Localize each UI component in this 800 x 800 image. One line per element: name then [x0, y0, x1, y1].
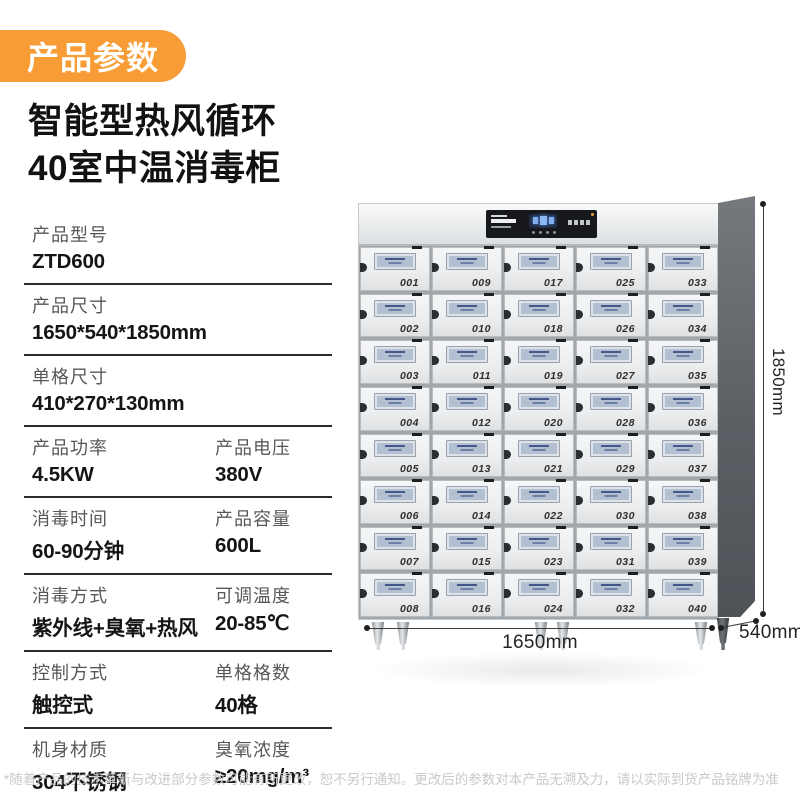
door-window: [446, 533, 488, 550]
spec-value: 410*270*130mm: [32, 392, 215, 416]
door-window-label: [521, 396, 557, 407]
door-hinge: [412, 386, 422, 389]
door-number: 030: [616, 510, 635, 522]
spec-label: 可调温度: [215, 582, 332, 608]
dim-height-line: [763, 207, 764, 613]
control-panel-subtext: [491, 226, 511, 228]
window-text-line: [389, 449, 402, 451]
window-text-line: [533, 495, 546, 497]
cabinet-door: 007: [360, 527, 430, 571]
cabinet-door: 037: [648, 434, 718, 478]
door-window: [590, 579, 632, 596]
door-window-label: [449, 489, 485, 500]
door-latch-icon: [576, 450, 583, 459]
door-latch-icon: [576, 543, 583, 552]
dim-depth-label: 540mm: [739, 622, 800, 644]
door-window-label: [593, 256, 629, 267]
door-hinge: [484, 339, 494, 342]
control-panel-logo: [491, 215, 507, 217]
spec-value: 60-90分钟: [32, 534, 215, 564]
door-window: [590, 253, 632, 270]
door-latch-icon: [648, 543, 655, 552]
dim-width-label: 1650mm: [485, 632, 595, 654]
door-window-label: [665, 396, 701, 407]
door-number: 029: [616, 463, 635, 475]
window-text-line: [677, 495, 690, 497]
cabinet-door: 032: [576, 573, 646, 617]
door-number: 026: [616, 323, 635, 335]
cabinet-door: 015: [432, 527, 502, 571]
window-text-line: [529, 584, 549, 586]
cabinet-door: 002: [360, 294, 430, 338]
door-hinge: [412, 293, 422, 296]
door-window-label: [665, 256, 701, 267]
window-text-line: [461, 309, 474, 311]
door-number: 024: [544, 603, 563, 615]
door-window-label: [521, 256, 557, 267]
spec-label: 臭氧浓度: [215, 736, 332, 762]
door-window: [446, 486, 488, 503]
window-text-line: [601, 398, 621, 400]
spec-label: 产品功率: [32, 434, 215, 460]
window-text-line: [385, 538, 405, 540]
cabinet-door: 006: [360, 480, 430, 524]
display-digit: [540, 216, 547, 225]
door-window: [662, 346, 704, 363]
door-hinge: [484, 246, 494, 249]
cabinet-leg: [371, 622, 385, 650]
panel-function-icon: [574, 220, 578, 225]
control-panel: [486, 210, 597, 238]
door-hinge: [628, 433, 638, 436]
product-params-badge: 产品参数: [0, 30, 186, 82]
door-number: 010: [472, 323, 491, 335]
window-text-line: [601, 305, 621, 307]
window-text-line: [529, 491, 549, 493]
spec-cell: 可调温度20-85℃: [215, 582, 332, 641]
door-number: 002: [400, 323, 419, 335]
cabinet-door: 035: [648, 340, 718, 384]
door-latch-icon: [504, 403, 511, 412]
spec-value: 20-85℃: [215, 611, 332, 636]
door-window-label: [377, 303, 413, 314]
dim-height-label: 1850mm: [768, 348, 788, 416]
door-window-label: [593, 489, 629, 500]
spec-value: 600L: [215, 534, 332, 558]
window-text-line: [389, 495, 402, 497]
window-text-line: [389, 355, 402, 357]
door-window-label: [593, 582, 629, 593]
spec-row: 产品功率4.5KW产品电压380V: [24, 427, 332, 498]
door-hinge: [412, 246, 422, 249]
door-window-label: [593, 536, 629, 547]
disclaimer-footnote: *随着产品的技术革新与改进部分参数可能有所更改，恕不另行通知。更改后的参数对本产…: [4, 768, 798, 788]
door-latch-icon: [432, 356, 439, 365]
cabinet-door: 029: [576, 434, 646, 478]
door-window: [518, 440, 560, 457]
window-text-line: [385, 445, 405, 447]
door-window: [374, 393, 416, 410]
spec-row: 机身材质304不锈钢臭氧浓度≥20mg/m³: [24, 729, 332, 800]
door-number: 011: [473, 370, 491, 382]
door-hinge: [628, 339, 638, 342]
spec-row: 消毒方式紫外线+臭氧+热风可调温度20-85℃: [24, 575, 332, 652]
door-window: [518, 300, 560, 317]
panel-button: [539, 231, 542, 234]
window-text-line: [605, 542, 618, 544]
spec-row: 单格尺寸410*270*130mm: [24, 356, 332, 427]
spec-table: 产品型号ZTD600产品尺寸1650*540*1850mm单格尺寸410*270…: [24, 214, 332, 800]
badge-label: 产品参数: [27, 33, 159, 79]
door-latch-icon: [360, 543, 367, 552]
door-hinge: [484, 293, 494, 296]
window-text-line: [533, 309, 546, 311]
door-window: [590, 486, 632, 503]
display-digit: [549, 217, 554, 224]
door-window-label: [449, 349, 485, 360]
spec-label: 机身材质: [32, 736, 215, 762]
door-hinge: [556, 246, 566, 249]
door-window-label: [449, 256, 485, 267]
window-text-line: [389, 588, 402, 590]
door-number: 014: [472, 510, 491, 522]
window-text-line: [605, 449, 618, 451]
window-text-line: [673, 445, 693, 447]
door-window-label: [377, 489, 413, 500]
door-hinge: [700, 433, 710, 436]
door-hinge: [484, 433, 494, 436]
spec-label: 单格格数: [215, 659, 332, 685]
door-latch-icon: [432, 450, 439, 459]
cabinet-door: 013: [432, 434, 502, 478]
door-number: 022: [544, 510, 563, 522]
window-text-line: [461, 262, 474, 264]
door-window: [662, 253, 704, 270]
cabinet-door: 027: [576, 340, 646, 384]
door-number: 031: [616, 556, 635, 568]
door-window-label: [449, 582, 485, 593]
door-hinge: [484, 526, 494, 529]
spec-row: 消毒时间60-90分钟产品容量600L: [24, 498, 332, 575]
window-text-line: [529, 398, 549, 400]
door-hinge: [556, 433, 566, 436]
panel-function-icon: [586, 220, 590, 225]
window-text-line: [601, 351, 621, 353]
door-latch-icon: [648, 403, 655, 412]
panel-function-icon: [580, 220, 584, 225]
door-number: 019: [544, 370, 563, 382]
window-text-line: [533, 402, 546, 404]
door-number: 020: [544, 417, 563, 429]
cabinet-door: 012: [432, 387, 502, 431]
panel-button: [546, 231, 549, 234]
door-window-label: [593, 349, 629, 360]
door-number: 034: [688, 323, 707, 335]
door-latch-icon: [504, 263, 511, 272]
door-window: [662, 393, 704, 410]
cabinet-door: 040: [648, 573, 718, 617]
door-hinge: [484, 479, 494, 482]
window-text-line: [457, 584, 477, 586]
window-text-line: [529, 305, 549, 307]
window-text-line: [461, 355, 474, 357]
product-title: 智能型热风循环 40室中温消毒柜: [28, 99, 281, 193]
door-latch-icon: [360, 496, 367, 505]
power-indicator-dot: [591, 213, 594, 216]
cabinet-door: 018: [504, 294, 574, 338]
dim-dot: [364, 625, 370, 631]
cabinet-side-panel: [718, 196, 755, 624]
spec-cell: 产品功率4.5KW: [32, 434, 215, 487]
door-number: 040: [688, 603, 707, 615]
door-number: 004: [400, 417, 419, 429]
spec-cell: 产品尺寸1650*540*1850mm: [32, 292, 215, 345]
door-number: 028: [616, 417, 635, 429]
door-window: [446, 440, 488, 457]
door-window-label: [665, 443, 701, 454]
cabinet-door: 014: [432, 480, 502, 524]
cabinet-door: 016: [432, 573, 502, 617]
window-text-line: [605, 309, 618, 311]
door-latch-icon: [432, 263, 439, 272]
window-text-line: [533, 262, 546, 264]
door-hinge: [412, 526, 422, 529]
door-number: 001: [400, 277, 419, 289]
door-window: [374, 533, 416, 550]
spec-cell: 消毒方式紫外线+臭氧+热风: [32, 582, 215, 641]
door-number: 009: [472, 277, 491, 289]
cabinet-door: 005: [360, 434, 430, 478]
door-number: 017: [544, 277, 563, 289]
panel-button: [553, 231, 556, 234]
cabinet-door: 009: [432, 247, 502, 291]
door-hinge: [700, 479, 710, 482]
window-text-line: [457, 445, 477, 447]
door-window: [518, 393, 560, 410]
door-hinge: [556, 479, 566, 482]
door-latch-icon: [504, 356, 511, 365]
spec-label: 产品电压: [215, 434, 332, 460]
window-text-line: [677, 542, 690, 544]
door-window: [590, 393, 632, 410]
control-panel-logo-text: [491, 219, 516, 223]
spec-row: 产品型号ZTD600: [24, 214, 332, 285]
door-latch-icon: [648, 496, 655, 505]
door-hinge: [628, 386, 638, 389]
cabinet-door: 025: [576, 247, 646, 291]
window-text-line: [529, 351, 549, 353]
window-text-line: [677, 449, 690, 451]
window-text-line: [529, 445, 549, 447]
window-text-line: [529, 258, 549, 260]
door-window-label: [377, 256, 413, 267]
door-latch-icon: [576, 356, 583, 365]
floor-reflection: [370, 652, 715, 688]
cabinet-door: 031: [576, 527, 646, 571]
door-window: [662, 300, 704, 317]
door-hinge: [412, 479, 422, 482]
door-number: 016: [472, 603, 491, 615]
door-latch-icon: [432, 589, 439, 598]
door-window: [446, 300, 488, 317]
door-window: [590, 346, 632, 363]
window-text-line: [605, 355, 618, 357]
window-text-line: [457, 305, 477, 307]
door-window-label: [377, 396, 413, 407]
panel-button: [532, 231, 535, 234]
door-latch-icon: [360, 356, 367, 365]
door-latch-icon: [504, 589, 511, 598]
window-text-line: [673, 491, 693, 493]
door-hinge: [700, 386, 710, 389]
door-window: [446, 253, 488, 270]
cabinet-door: 008: [360, 573, 430, 617]
cabinet-illustration: 0010090170250330020100180260340030110190…: [358, 196, 798, 666]
spec-label: 控制方式: [32, 659, 215, 685]
window-text-line: [605, 588, 618, 590]
door-hinge: [412, 339, 422, 342]
door-grid: 0010090170250330020100180260340030110190…: [359, 246, 719, 619]
cabinet-front: 0010090170250330020100180260340030110190…: [358, 203, 718, 620]
cabinet-leg: [694, 622, 708, 650]
window-text-line: [457, 258, 477, 260]
window-text-line: [601, 445, 621, 447]
window-text-line: [385, 398, 405, 400]
window-text-line: [673, 538, 693, 540]
door-number: 036: [688, 417, 707, 429]
cabinet-door: 010: [432, 294, 502, 338]
window-text-line: [385, 584, 405, 586]
door-hinge: [484, 572, 494, 575]
window-text-line: [601, 584, 621, 586]
door-window: [590, 300, 632, 317]
spec-cell: 消毒时间60-90分钟: [32, 505, 215, 564]
cabinet-door: 023: [504, 527, 574, 571]
window-text-line: [389, 402, 402, 404]
door-window: [446, 579, 488, 596]
door-window-label: [665, 349, 701, 360]
spec-value: 40格: [215, 688, 332, 718]
spec-cell: 产品容量600L: [215, 505, 332, 564]
door-window-label: [521, 489, 557, 500]
door-latch-icon: [360, 263, 367, 272]
door-latch-icon: [576, 403, 583, 412]
window-text-line: [385, 491, 405, 493]
door-latch-icon: [576, 496, 583, 505]
window-text-line: [385, 258, 405, 260]
door-hinge: [700, 572, 710, 575]
door-latch-icon: [504, 496, 511, 505]
door-number: 005: [400, 463, 419, 475]
door-latch-icon: [648, 356, 655, 365]
cabinet-top-band: [359, 204, 718, 246]
door-window: [662, 486, 704, 503]
door-latch-icon: [504, 310, 511, 319]
spec-cell: 单格格数40格: [215, 659, 332, 718]
door-hinge: [700, 526, 710, 529]
door-number: 039: [688, 556, 707, 568]
cabinet-door: 034: [648, 294, 718, 338]
door-window-label: [449, 536, 485, 547]
door-hinge: [628, 246, 638, 249]
spec-label: 产品型号: [32, 221, 215, 247]
spec-cell: 产品型号ZTD600: [32, 221, 215, 274]
door-hinge: [628, 572, 638, 575]
window-text-line: [601, 538, 621, 540]
window-text-line: [389, 309, 402, 311]
window-text-line: [673, 305, 693, 307]
dim-width-line: [368, 628, 712, 629]
panel-function-icon: [568, 220, 572, 225]
door-window-label: [377, 349, 413, 360]
door-window-label: [377, 582, 413, 593]
door-number: 038: [688, 510, 707, 522]
cabinet-door: 024: [504, 573, 574, 617]
window-text-line: [461, 449, 474, 451]
cabinet-leg: [396, 622, 410, 650]
door-window-label: [377, 443, 413, 454]
window-text-line: [677, 309, 690, 311]
door-latch-icon: [360, 450, 367, 459]
title-line-2: 40室中温消毒柜: [28, 146, 281, 193]
door-hinge: [556, 293, 566, 296]
cabinet-door: 026: [576, 294, 646, 338]
cabinet-door: 038: [648, 480, 718, 524]
door-window-label: [665, 303, 701, 314]
door-latch-icon: [576, 263, 583, 272]
door-window: [374, 300, 416, 317]
window-text-line: [457, 491, 477, 493]
door-window-label: [665, 489, 701, 500]
door-latch-icon: [504, 543, 511, 552]
cabinet-side-leg: [716, 618, 730, 650]
window-text-line: [461, 588, 474, 590]
cabinet-door: 033: [648, 247, 718, 291]
door-window-label: [521, 582, 557, 593]
spec-row: 控制方式触控式单格格数40格: [24, 652, 332, 729]
cabinet-door: 022: [504, 480, 574, 524]
door-window: [518, 346, 560, 363]
dim-dot: [760, 201, 766, 207]
window-text-line: [461, 495, 474, 497]
door-number: 007: [400, 556, 419, 568]
window-text-line: [385, 351, 405, 353]
door-hinge: [412, 433, 422, 436]
door-latch-icon: [648, 589, 655, 598]
cabinet-door: 017: [504, 247, 574, 291]
window-text-line: [533, 449, 546, 451]
door-window: [590, 533, 632, 550]
spec-value: 触控式: [32, 688, 215, 718]
window-text-line: [389, 542, 402, 544]
dim-dot: [760, 611, 766, 617]
spec-value: 4.5KW: [32, 463, 215, 487]
door-window-label: [521, 303, 557, 314]
cabinet-door: 003: [360, 340, 430, 384]
door-number: 003: [400, 370, 419, 382]
display-digit: [533, 217, 538, 224]
door-number: 018: [544, 323, 563, 335]
window-text-line: [461, 542, 474, 544]
door-number: 023: [544, 556, 563, 568]
door-window: [446, 393, 488, 410]
door-window: [374, 253, 416, 270]
spec-cell: 控制方式触控式: [32, 659, 215, 718]
door-hinge: [556, 572, 566, 575]
door-latch-icon: [576, 589, 583, 598]
door-window-label: [593, 303, 629, 314]
door-window: [590, 440, 632, 457]
